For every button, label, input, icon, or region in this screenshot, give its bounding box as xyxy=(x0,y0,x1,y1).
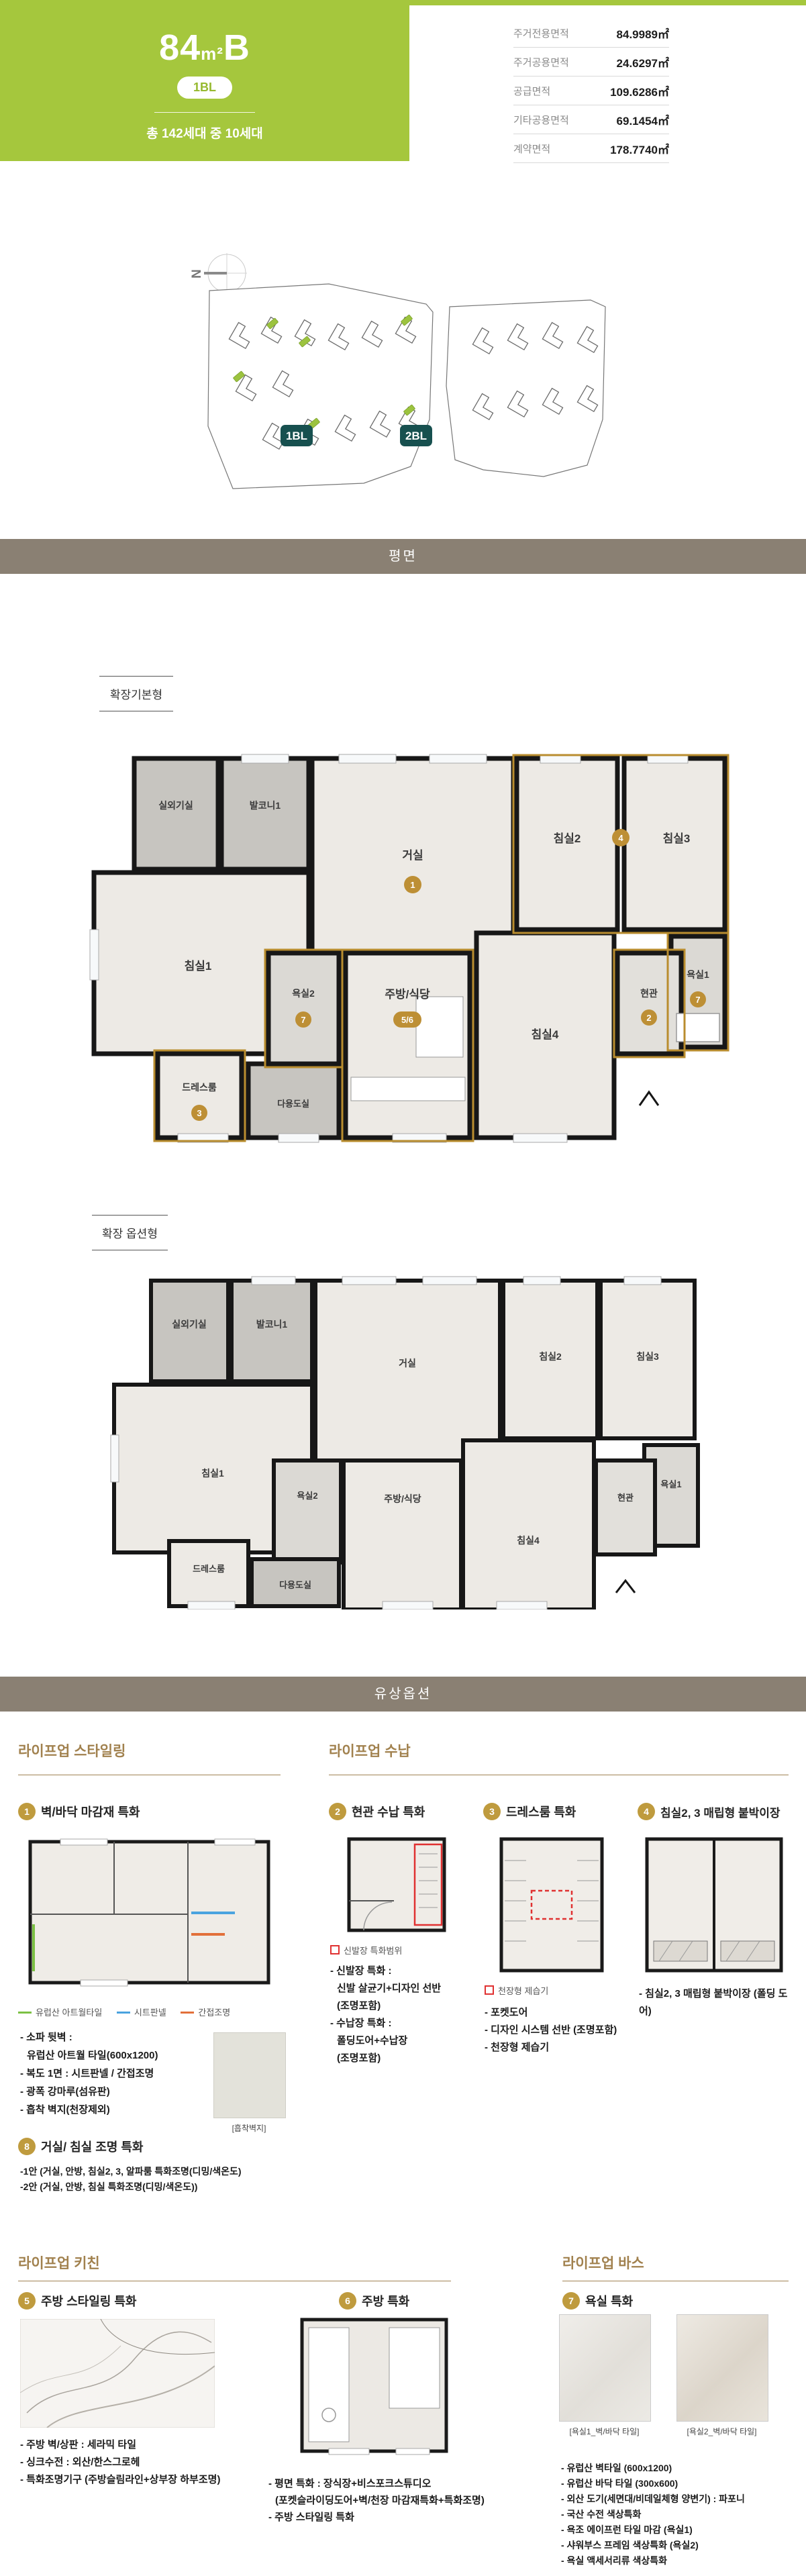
item6-number-badge: 6 xyxy=(339,2292,356,2310)
bullet: - 욕실 액세서리류 색상특화 xyxy=(561,2553,803,2569)
area-value: 84.9989㎡ xyxy=(617,25,669,42)
section-bar-plan: 평면 xyxy=(0,539,806,574)
label-dress: 드레스룸 xyxy=(193,1564,225,1574)
item1-number-badge: 1 xyxy=(18,1803,36,1820)
bullet: - 수납장 특화 : xyxy=(330,2015,471,2032)
item2-bullets: - 신발장 특화 : 신발 살균기+디자인 선반 (조명포함) - 수납장 특화… xyxy=(330,1963,471,2067)
bath1-tile-swatch xyxy=(559,2314,651,2422)
table-row: 주거공용면적24.6297㎡ xyxy=(513,48,669,77)
blue-dash-icon xyxy=(117,2012,130,2014)
builtin-closet-thumbnail xyxy=(639,1834,790,1976)
bullet: - 욕조 에이프런 타일 마감 (욕실1) xyxy=(561,2522,803,2538)
area-label: 공급면적 xyxy=(513,84,550,98)
area-value: 24.6297㎡ xyxy=(617,54,669,70)
item7-title: 7 욕실 특화 xyxy=(562,2292,633,2310)
room-balcony1 xyxy=(221,758,309,869)
item7-number-badge: 7 xyxy=(562,2292,580,2310)
bespoke-studio xyxy=(389,2328,440,2408)
red-box-icon xyxy=(485,1985,494,1995)
storage-header-line xyxy=(329,1775,789,1775)
hero-divider xyxy=(154,112,255,113)
bath2-tile-swatch xyxy=(676,2314,768,2422)
label-bed1: 침실1 xyxy=(201,1468,224,1479)
site-plan: N xyxy=(168,198,638,493)
legend-sheet-panel: 시트판넬 xyxy=(117,2008,166,2018)
label-balcony1: 발코니1 xyxy=(256,1319,288,1330)
bullet: - 평면 특화 : 장식장+비스포크스튜디오 xyxy=(268,2475,537,2492)
label-living: 거실 xyxy=(402,849,423,862)
kitchen-counter xyxy=(351,1077,465,1101)
label-entry: 현관 xyxy=(617,1493,634,1503)
unit-count: 총 142세대 중 10세대 xyxy=(0,123,409,142)
table-row: 기타공용면적69.1454㎡ xyxy=(513,105,669,134)
label-bath1: 욕실1 xyxy=(660,1479,681,1489)
plan-option-tag: 확장 옵션형 xyxy=(92,1215,168,1250)
ceramic-tile-swatch xyxy=(20,2319,215,2428)
label-kitchen: 주방/식당 xyxy=(384,1493,421,1504)
label-bed3: 침실3 xyxy=(636,1351,659,1362)
legend-artwall: 유럽산 아트월타일 xyxy=(18,2008,102,2018)
area-label: 주거전용면적 xyxy=(513,26,569,40)
dressroom-thumbnail xyxy=(485,1834,619,1976)
section-bar-options: 유상옵션 xyxy=(0,1677,806,1712)
area-value: 178.7740㎡ xyxy=(610,140,669,157)
item3-legend: 천장형 제습기 xyxy=(485,1984,548,1997)
storage-header: 라이프업 수납 xyxy=(329,1740,411,1761)
label-bed1: 침실1 xyxy=(185,959,212,973)
label-bed4: 침실4 xyxy=(532,1028,559,1041)
entrance-arrow xyxy=(640,1092,658,1105)
brochure-page: 84m²B 1BL 총 142세대 중 10세대 주거전용면적84.9989㎡ … xyxy=(0,0,806,2576)
item3-bullets: - 포켓도어 - 디자인 시스템 선반 (조명포함) - 천장형 제습기 xyxy=(485,2004,639,2057)
floor-plan-basic: 실외기실 발코니1 거실 침실2 침실3 침실1 욕실1 욕실2 주방/식당 침… xyxy=(77,728,735,1144)
item4-bullets: - 침실2, 3 매립형 붙박이장 (폴딩 도어) xyxy=(639,1985,793,2020)
label-utility: 다용도실 xyxy=(277,1099,309,1109)
area-label: 기타공용면적 xyxy=(513,113,569,127)
styling-header: 라이프업 스타일링 xyxy=(18,1740,125,1761)
block1-badge: 1BL xyxy=(281,425,313,446)
bullet: - 특화조명기구 (주방슬림라인+상부장 하부조명) xyxy=(20,2471,309,2489)
table-row: 주거전용면적84.9989㎡ xyxy=(513,19,669,48)
label-dress: 드레스룸 xyxy=(182,1082,217,1093)
table-row: 계약면적178.7740㎡ xyxy=(513,134,669,163)
room-dress xyxy=(158,1054,242,1138)
bullet: - 복도 1면 : 시트판넬 / 간접조명 xyxy=(20,2065,208,2083)
item2-title: 2 현관 수납 특화 xyxy=(329,1803,425,1820)
svg-text:2: 2 xyxy=(646,1013,651,1023)
bullet: (조명포함) xyxy=(330,1997,471,2015)
item5-title: 5 주방 스타일링 특화 xyxy=(18,2292,136,2310)
item8-number-badge: 8 xyxy=(18,2138,36,2155)
block2-boundary xyxy=(446,300,605,477)
item2-number-badge: 2 xyxy=(329,1803,346,1820)
label-utility: 다용도실 xyxy=(279,1580,311,1590)
green-dash-icon xyxy=(18,2012,32,2014)
item4-title: 4 침실2, 3 매립형 붙박이장 xyxy=(638,1803,780,1820)
item2-legend: 신발장 특화범위 xyxy=(330,1944,402,1956)
bullet: - 샤워부스 프레임 색상특화 (욕실2) xyxy=(561,2538,803,2553)
label-bath2: 욕실2 xyxy=(292,988,315,999)
block2-badge: 2BL xyxy=(400,425,432,446)
styling-header-line xyxy=(18,1775,281,1775)
item3-number-badge: 3 xyxy=(483,1803,501,1820)
label-kitchen: 주방/식당 xyxy=(385,988,430,1001)
north-label: N xyxy=(190,269,204,279)
bullet: - 소파 뒷벽 : xyxy=(20,2028,208,2046)
area-label: 주거공용면적 xyxy=(513,55,569,69)
svg-text:1: 1 xyxy=(410,880,415,890)
bullet: -1안 (거실, 안방, 침실2, 3, 알파룸 특화조명(디밍/색온도) xyxy=(20,2164,315,2179)
finish-plan-thumbnail xyxy=(20,1834,279,1991)
bullet: - 유럽산 벽타일 (600x1200) xyxy=(561,2461,803,2476)
bullet: - 포켓도어 xyxy=(485,2004,639,2022)
bullet: - 외산 도기(세면대/비데일체형 양변기) : 파포니 xyxy=(561,2491,803,2507)
bullet: (조명포함) xyxy=(330,2050,471,2067)
item3-title: 3 드레스룸 특화 xyxy=(483,1803,576,1820)
item8-bullets: -1안 (거실, 안방, 침실2, 3, 알파룸 특화조명(디밍/색온도) -2… xyxy=(20,2164,315,2195)
item5-bullets: - 주방 벽/상판 : 세라믹 타일 - 싱크수전 : 외산/한스그로헤 - 특… xyxy=(20,2436,309,2489)
label-bed3: 침실3 xyxy=(663,832,691,845)
bullet: - 유럽산 바닥 타일 (300x600) xyxy=(561,2476,803,2491)
svg-text:7: 7 xyxy=(301,1015,305,1025)
room-bath2 xyxy=(274,1460,341,1563)
room-entry xyxy=(617,953,681,1054)
kitchen-island xyxy=(416,997,463,1057)
unit-hero: 84m²B 1BL 총 142세대 중 10세대 xyxy=(0,0,409,161)
wallpaper-swatch xyxy=(213,2032,286,2118)
closet-strip xyxy=(654,1941,707,1961)
item7-bullets: - 유럽산 벽타일 (600x1200) - 유럽산 바닥 타일 (300x60… xyxy=(561,2461,803,2569)
bath1-tile-caption: [욕실1_벽/바닥 타일] xyxy=(559,2426,650,2437)
unit-size: 84 xyxy=(159,28,201,68)
svg-text:1BL: 1BL xyxy=(286,430,307,442)
room-kitchen xyxy=(344,1460,461,1609)
legend-indirect-light: 간접조명 xyxy=(181,2008,230,2018)
floor-plan-option: 실외기실 발코니1 거실 침실2 침실3 침실1 욕실1 욕실2 주방/식당 침… xyxy=(101,1254,705,1609)
bullet: - 흡착 벽지(천장제외) xyxy=(20,2101,208,2119)
entrance-arrow xyxy=(616,1581,635,1593)
kitchen-counter xyxy=(309,2328,349,2442)
bullet: - 싱크수전 : 외산/한스그로헤 xyxy=(20,2454,309,2471)
item1-title: 1 벽/바닥 마감재 특화 xyxy=(18,1803,140,1820)
bullet: - 주방 스타일링 특화 xyxy=(268,2509,537,2526)
plan-basic-tag: 확장기본형 xyxy=(99,676,173,711)
bullet: - 광폭 강마루(섬유판) xyxy=(20,2083,208,2101)
green-top-strip xyxy=(409,0,806,5)
table-row: 공급면적109.6286㎡ xyxy=(513,77,669,105)
label-bed2: 침실2 xyxy=(554,832,581,845)
label-bed4: 침실4 xyxy=(517,1535,540,1546)
bullet: (포켓슬라이딩도어+벽/천장 마감재특화+특화조명) xyxy=(268,2492,537,2509)
svg-text:7: 7 xyxy=(695,995,700,1005)
item8-title: 8 거실/ 침실 조명 특화 xyxy=(18,2138,143,2155)
closet-strip xyxy=(721,1941,774,1961)
bullet: - 천장형 제습기 xyxy=(485,2039,639,2057)
bullet: -2안 (거실, 안방, 침실 특화조명(디밍/색온도)) xyxy=(20,2179,315,2195)
item5-number-badge: 5 xyxy=(18,2292,36,2310)
svg-text:3: 3 xyxy=(197,1108,201,1118)
item6-bullets: - 평면 특화 : 장식장+비스포크스튜디오 (포켓슬라이딩도어+벽/천장 마감… xyxy=(268,2475,537,2526)
item1-bullets: - 소파 뒷벽 : 유럽산 아트월 타일(600x1200) - 복도 1면 :… xyxy=(20,2028,208,2119)
bathtub xyxy=(676,1013,719,1042)
label-outdoor-unit: 실외기실 xyxy=(158,800,193,811)
kitchen-plan-thumbnail xyxy=(289,2314,460,2457)
bath-header: 라이프업 바스 xyxy=(562,2252,644,2273)
bullet: - 침실2, 3 매립형 붙박이장 (폴딩 도어) xyxy=(639,1985,793,2020)
bullet: 폴딩도어+수납장 xyxy=(330,2032,471,2050)
kitchen-header-line xyxy=(18,2281,451,2281)
label-bed2: 침실2 xyxy=(539,1351,562,1362)
room-balcony1 xyxy=(232,1281,312,1381)
room-bath2 xyxy=(268,953,339,1064)
bullet: - 신발장 특화 : xyxy=(330,1963,471,1980)
block-badge: 1BL xyxy=(177,77,232,99)
orange-dash-icon xyxy=(181,2012,194,2014)
unit-type: B xyxy=(223,28,250,68)
item6-title: 6 주방 특화 xyxy=(339,2292,409,2310)
svg-text:5/6: 5/6 xyxy=(401,1015,413,1025)
label-entry: 현관 xyxy=(640,988,658,999)
label-bath1: 욕실1 xyxy=(687,969,709,980)
label-outdoor-unit: 실외기실 xyxy=(172,1319,207,1330)
label-bath2: 욕실2 xyxy=(297,1491,317,1501)
sink xyxy=(322,2408,336,2422)
area-value: 109.6286㎡ xyxy=(610,83,669,99)
label-balcony1: 발코니1 xyxy=(250,800,281,811)
item4-number-badge: 4 xyxy=(638,1803,655,1820)
north-compass: N xyxy=(190,253,247,293)
svg-text:4: 4 xyxy=(618,833,623,843)
finish-legend: 유럽산 아트월타일 시트판넬 간접조명 xyxy=(18,2005,230,2018)
label-living: 거실 xyxy=(399,1358,416,1369)
bullet: 유럽산 아트월 타일(600x1200) xyxy=(20,2046,208,2065)
room-outdoor-unit xyxy=(134,758,218,869)
room-outdoor-unit xyxy=(151,1281,228,1381)
wallpaper-caption: [흡착벽지] xyxy=(213,2122,285,2134)
area-table: 주거전용면적84.9989㎡ 주거공용면적24.6297㎡ 공급면적109.62… xyxy=(513,19,669,163)
entry-storage-thumbnail xyxy=(330,1834,461,1936)
unit-sqm: m² xyxy=(201,44,223,64)
bullet: - 주방 벽/상판 : 세라믹 타일 xyxy=(20,2436,309,2454)
svg-text:2BL: 2BL xyxy=(405,430,427,442)
room-entry xyxy=(596,1460,655,1554)
area-value: 69.1454㎡ xyxy=(617,111,669,128)
room-bed4 xyxy=(463,1440,594,1609)
bullet: - 디자인 시스템 선반 (조명포함) xyxy=(485,2022,639,2039)
bullet: - 국산 수전 색상특화 xyxy=(561,2507,803,2522)
kitchen-header: 라이프업 키친 xyxy=(18,2252,100,2273)
unit-title: 84m²B xyxy=(0,0,409,68)
red-box-icon xyxy=(330,1945,340,1954)
bullet: 신발 살균기+디자인 선반 xyxy=(330,1980,471,1997)
area-label: 계약면적 xyxy=(513,142,550,156)
bath-header-line xyxy=(562,2281,789,2281)
bath2-tile-caption: [욕실2_벽/바닥 타일] xyxy=(676,2426,767,2437)
